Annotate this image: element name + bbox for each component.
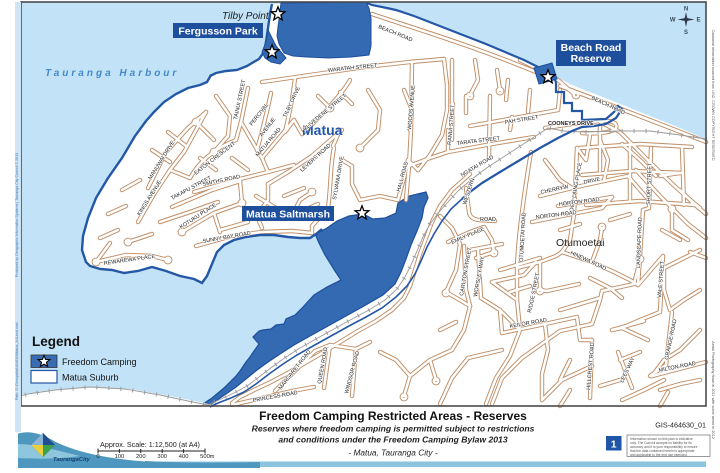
svg-text:Aerial Photography flown in 20: Aerial Photography flown in 2011 with so… (711, 341, 715, 439)
svg-text:200: 200 (136, 454, 146, 460)
svg-text:E: E (697, 18, 701, 24)
svg-text:and conditions under the Freed: and conditions under the Freedom Camping… (278, 435, 507, 445)
svg-text:S: S (684, 30, 688, 36)
svg-text:Produced by Geographic Informa: Produced by Geographic Information Syste… (15, 153, 19, 277)
svg-text:N: N (684, 7, 688, 13)
svg-text:and applicable to the end use: and applicable to the end use intended. (630, 453, 688, 457)
svg-text:Reserves where freedom camping: Reserves where freedom camping is permit… (252, 424, 535, 434)
svg-text:Freedom Camping Restricted Are: Freedom Camping Restricted Areas - Reser… (259, 409, 527, 423)
svg-text:Matua Suburb: Matua Suburb (62, 373, 119, 383)
svg-text:Fergusson Park: Fergusson Park (178, 26, 258, 38)
svg-text:Reserve: Reserve (571, 53, 612, 65)
svg-text:Approx. Scale: 1:12,500 (at A: Approx. Scale: 1:12,500 (at A4) (100, 440, 200, 449)
svg-text:GIS-464630_01: GIS-464630_01 (655, 421, 706, 430)
svg-text:Tauranga Harbour: Tauranga Harbour (45, 68, 179, 79)
svg-text:0: 0 (96, 454, 99, 460)
svg-text:1: 1 (611, 439, 617, 451)
svg-text:100: 100 (115, 454, 125, 460)
svg-text:COONEYS DRIVE: COONEYS DRIVE (548, 121, 594, 127)
svg-text:300: 300 (157, 454, 167, 460)
svg-text:Legend: Legend (32, 334, 80, 349)
svg-text:Matua Saltmarsh: Matua Saltmarsh (246, 209, 330, 221)
svg-text:Otumoetai: Otumoetai (556, 237, 604, 249)
svg-text:m: m (210, 454, 215, 460)
svg-text:W: W (670, 18, 676, 24)
svg-text:Path: G:\Geospatial\464630\Mat: Path: G:\Geospatial\464630\Matua_A4Land.… (15, 322, 19, 400)
svg-text:400: 400 (179, 454, 189, 460)
svg-text:Tilby Point: Tilby Point (222, 11, 270, 22)
svg-text:TaurangaCity: TaurangaCity (53, 457, 91, 463)
svg-text:Freedom Camping: Freedom Camping (62, 357, 137, 367)
svg-text:500: 500 (200, 454, 210, 460)
svg-text:- Matua, Tauranga City -: - Matua, Tauranga City - (348, 448, 437, 458)
svg-text:Cadastral information sourced: Cadastral information sourced from LINZ.… (711, 30, 715, 161)
svg-text:ROAD: ROAD (480, 217, 496, 223)
